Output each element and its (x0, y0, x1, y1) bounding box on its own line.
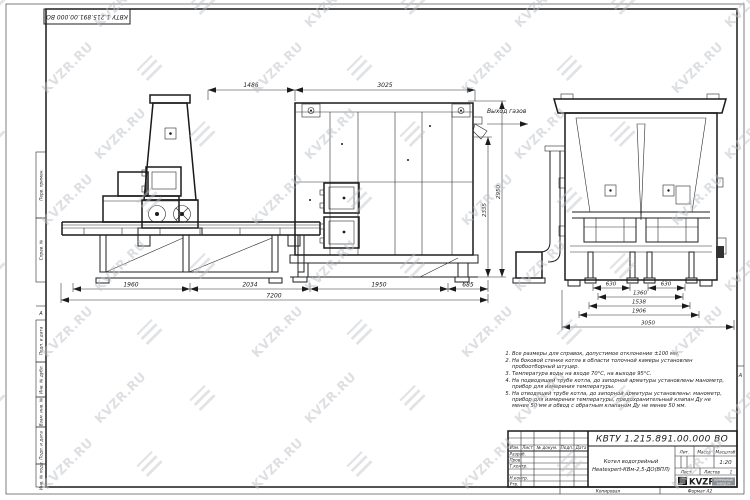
dim-1950: 1950 (371, 282, 386, 289)
margin-stamp-column: Перв. примен. Справ. № Подп. и дата Инв.… (36, 152, 46, 490)
dim-630-left: 630 (606, 282, 617, 288)
col-data: Дата (575, 445, 587, 450)
dim-1360: 1360 (633, 291, 647, 297)
sheet-label: Лист (680, 469, 692, 474)
sheets-label: Листов (703, 469, 720, 474)
title-doc-number: КВТУ 1.215.891.00.000 ВО (596, 435, 728, 445)
col-list: Лист (521, 445, 533, 450)
top-stamp-doc-number: КВТУ 1.215.891.00.000 ВО (46, 13, 128, 20)
col-docum: № докум. (536, 445, 558, 450)
col-podp: Подп. (561, 445, 574, 450)
margin-label-inv-podl: Инв. № подл. (39, 461, 44, 490)
col-izm: Изм. (510, 445, 520, 450)
end-view-dimensions: 630 630 1360 1538 1906 3050 (562, 282, 734, 331)
scale-label: Масштаб (716, 450, 736, 455)
row-razrab: Разраб. (510, 452, 526, 457)
format-label: Формат А2 (688, 489, 713, 495)
kvzr-logo-text: KVZR (689, 478, 715, 488)
dim-3025: 3025 (377, 82, 392, 89)
sheets-value: 1 (730, 469, 733, 474)
scale-value: 1:20 (719, 460, 732, 466)
note-item-5: На отводящей трубе котла, до запорной ар… (512, 391, 728, 409)
dim-1906: 1906 (632, 309, 646, 315)
copied-label: Копировал (596, 489, 621, 495)
dim-1538: 1538 (632, 300, 646, 306)
margin-label-perv-primen: Перв. примен. (39, 169, 44, 200)
dim-685: 685 (462, 282, 474, 289)
lit-label: Лит. (679, 450, 690, 455)
margin-label-podp-data-1: Подп. и дата (39, 326, 44, 355)
row-tkontr: Т.контр. (510, 464, 528, 469)
end-view (513, 94, 726, 286)
drawing-sheet: КВТУ 1.215.891.00.000 ВО Копировал Форма… (0, 0, 750, 500)
dim-7200: 7200 (266, 293, 281, 300)
note-item-3: Температура воды на входе 70°С, на выход… (512, 371, 728, 377)
side-view: Выход газов (62, 95, 528, 283)
dim-630-right: 630 (661, 282, 672, 288)
sheet-frame: КВТУ 1.215.891.00.000 ВО Копировал Форма… (6, 4, 744, 495)
dim-2034: 2034 (242, 282, 257, 289)
drawing-sheet-svg: КВТУ 1.215.891.00.000 ВО Копировал Форма… (0, 0, 750, 500)
margin-label-vzam-inv: Взам. инв. № (39, 397, 44, 426)
kvzr-logo-sub2: ЗАВОД.РУ (716, 482, 731, 486)
side-view-dimensions: 1486 3025 2335 2950 1960 2034 1950 685 7… (61, 82, 506, 303)
gas-outlet-label: Выход газов (487, 108, 527, 115)
row-nkontr: Н.контр. (510, 476, 529, 481)
dim-1486: 1486 (243, 82, 258, 89)
row-prov: Пров. (510, 458, 522, 463)
title-block: Изм. Лист № докум. Подп. Дата Разраб. Пр… (508, 431, 737, 488)
dim-2950: 2950 (496, 185, 502, 199)
dim-1960: 1960 (123, 282, 138, 289)
note-item-4: На подводящей трубе котла, до запорной а… (512, 378, 728, 390)
product-name-line1: Котел водогрейный (604, 459, 659, 465)
zone-marker-right: А (738, 373, 743, 379)
note-item-1: Все размеры для справок, допустимое откл… (512, 351, 728, 357)
row-utv: Утв. (510, 482, 519, 487)
zone-marker-left: А (38, 311, 43, 317)
dim-3050: 3050 (641, 321, 655, 327)
note-item-2: На боковой стенке котла в области топочн… (512, 358, 728, 370)
mass-label: Масса (697, 450, 711, 455)
margin-label-podp-data-2: Подп. и дата (39, 431, 44, 460)
notes-block: Все размеры для справок, допустимое откл… (502, 351, 728, 410)
margin-label-inv-dubl: Инв. № дубл. (39, 365, 44, 394)
margin-label-sprav-no: Справ. № (39, 239, 44, 260)
dim-2335: 2335 (482, 203, 488, 217)
product-name-line2: Heatexpert-КВм-2,5-ДО(ВПЛ) (592, 467, 670, 473)
